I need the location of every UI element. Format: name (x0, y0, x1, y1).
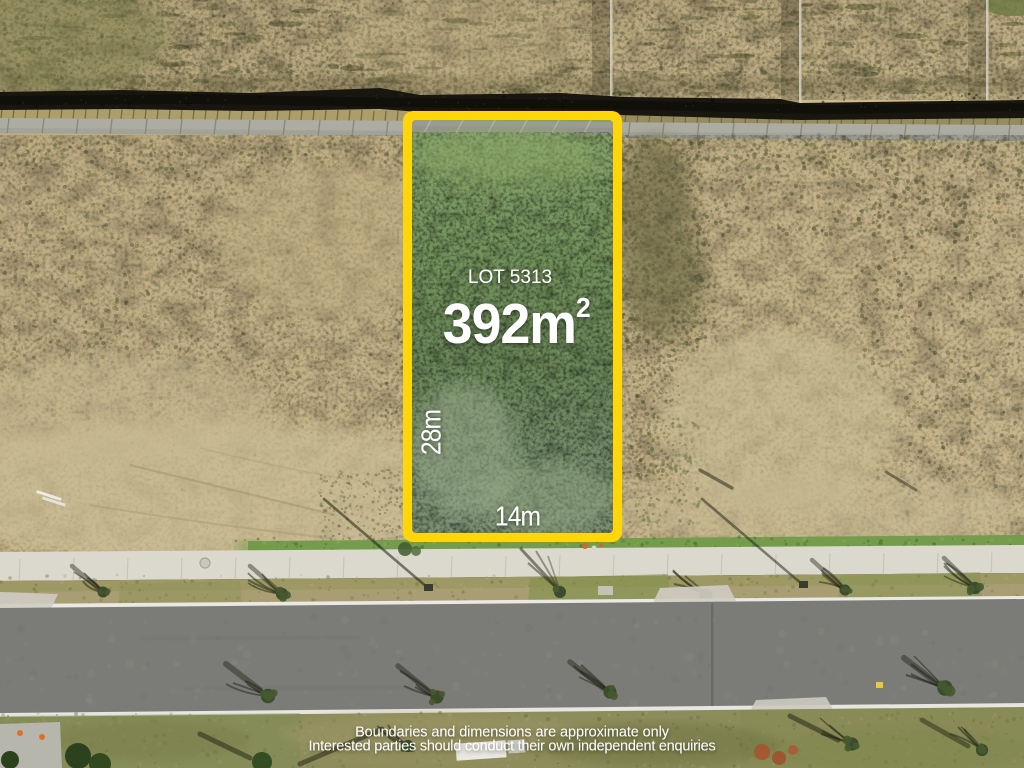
svg-text:Interested parties should cond: Interested parties should conduct their … (309, 739, 716, 755)
svg-text:28m: 28m (415, 410, 447, 455)
svg-text:392m2: 392m2 (443, 291, 591, 355)
svg-text:LOT 5313: LOT 5313 (468, 267, 552, 288)
svg-text:14m: 14m (495, 500, 540, 532)
